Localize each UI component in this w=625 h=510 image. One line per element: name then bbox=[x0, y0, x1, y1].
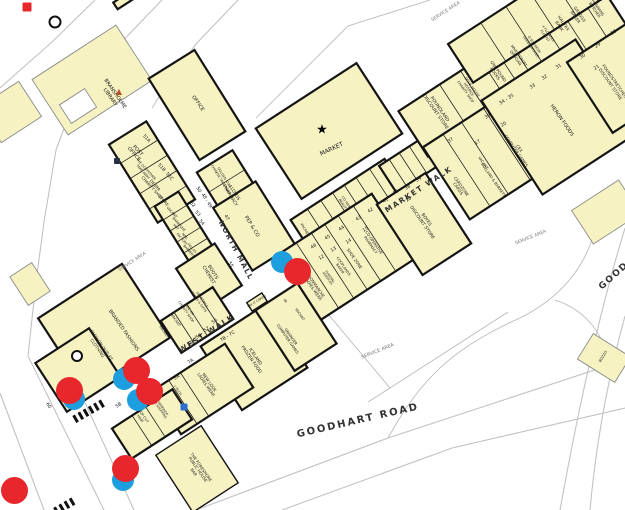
zebra-crossing bbox=[53, 400, 105, 510]
goad-retail-plan-map: NORTH MALLMARKET WALKWEST WALKGOODHART R… bbox=[0, 0, 625, 510]
map-geometry bbox=[0, 0, 625, 510]
